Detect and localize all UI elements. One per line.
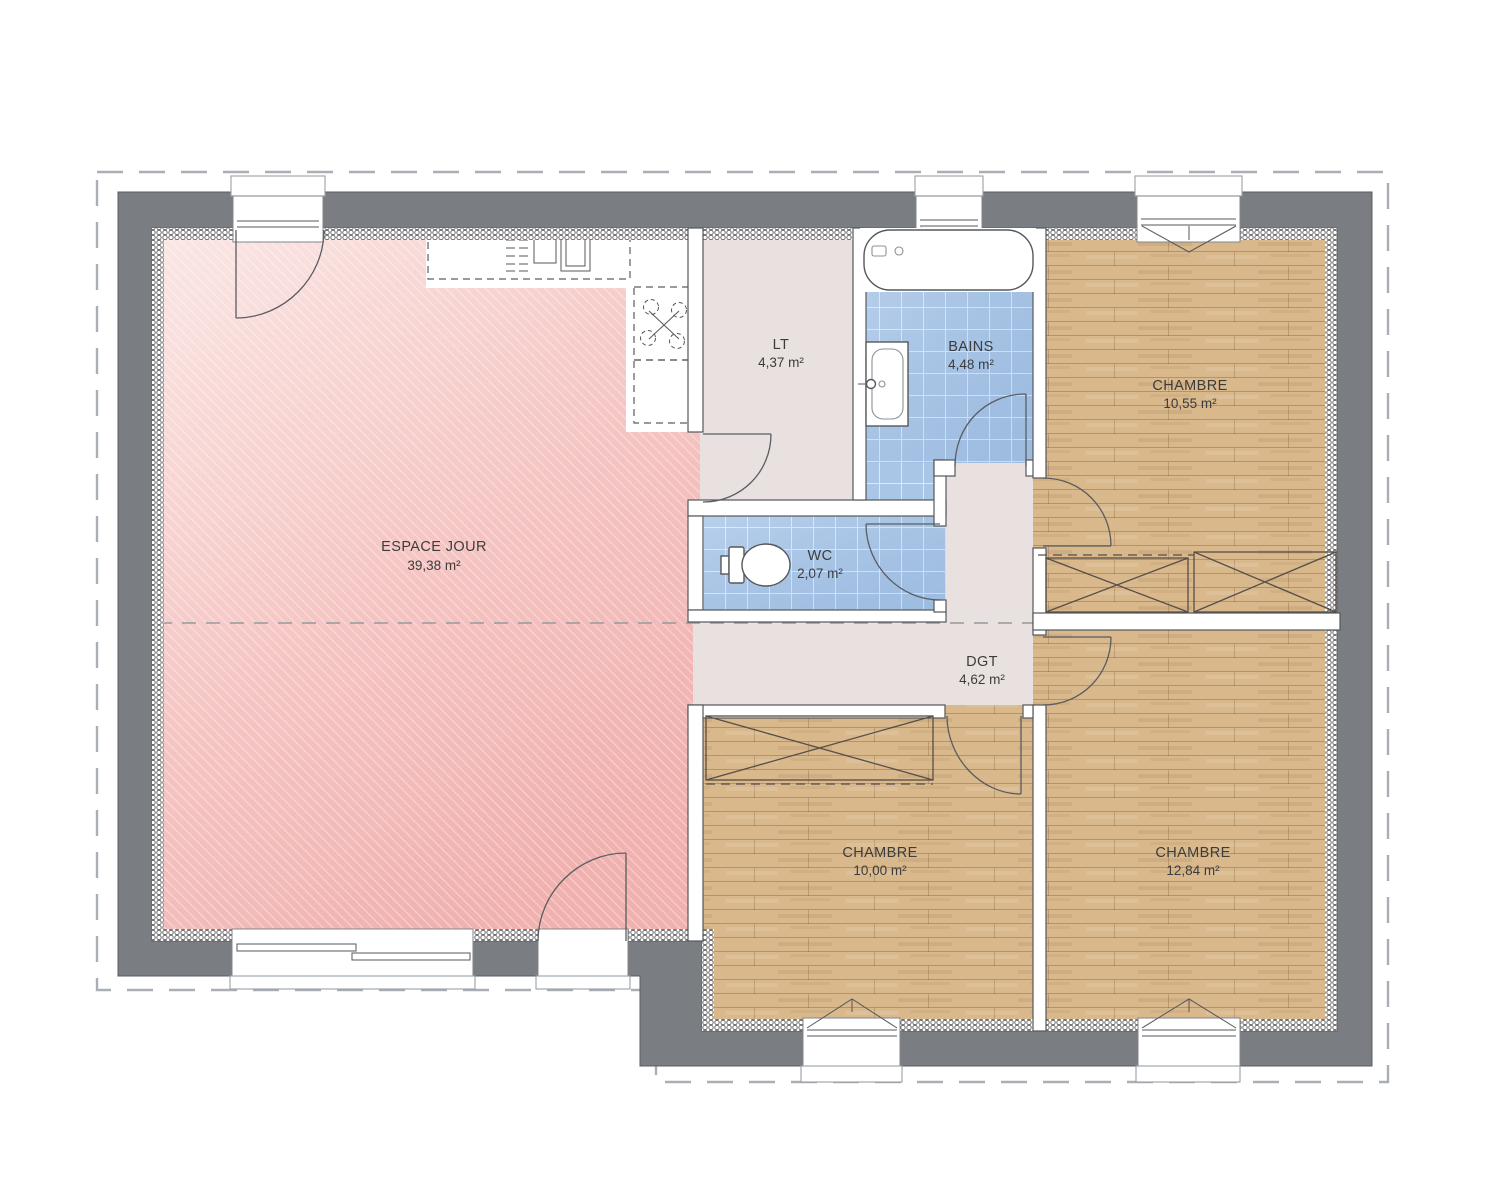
area-wc: 2,07 m² [797,566,843,581]
bay-window-exterior-box [230,976,475,989]
wall-living-chambre2 [688,705,703,941]
area-chambre-3: 12,84 m² [1166,863,1220,878]
floor-chambre-3 [1033,630,1337,1031]
wall-wc-dgt-right-lower [934,600,946,612]
floor-dgt-strip [946,463,1033,622]
wall-wc-dgt [688,610,946,622]
chambre1-window-exterior-box [1135,176,1242,196]
chambre2-window-exterior-box [801,1066,902,1082]
bathtub-icon [864,230,1033,290]
bains-sink-icon [858,342,908,426]
area-chambre-2: 10,00 m² [853,863,907,878]
label-wc: WC [808,548,833,564]
label-dgt: DGT [966,654,998,670]
area-dgt: 4,62 m² [959,672,1005,687]
wall-bains-dgt-stub-left [934,460,955,476]
wall-living-lt [688,228,703,432]
area-lt: 4,37 m² [758,355,804,370]
label-lt: LT [773,337,790,353]
label-chambre-1: CHAMBRE [1152,378,1227,394]
area-bains: 4,48 m² [948,357,994,372]
wall-chambre2-door-stub [1023,705,1033,718]
wall-living-wc [688,516,703,610]
toilet-icon [721,544,790,586]
wall-chambre1-chambre3 [1033,613,1340,630]
chambre2-window-opening [803,1018,900,1066]
label-bains: BAINS [948,339,994,355]
chambre3-window-exterior-box [1136,1066,1240,1082]
label-espace-jour: ESPACE JOUR [381,539,487,555]
floor-plan-page: ESPACE JOUR 39,38 m² LT 4,37 m² BAINS 4,… [0,0,1500,1200]
floor-bains-lower [866,463,940,502]
floor-espace-jour-hatch [152,228,700,941]
label-chambre-2: CHAMBRE [842,845,917,861]
bains-window-exterior-box [915,176,983,196]
living-door-opening [538,929,628,976]
entry-door-opening [233,196,323,242]
wall-chambre2-chambre3 [1033,705,1046,1031]
kitchen-column-zone [626,228,688,432]
entry-door-exterior-box [231,176,325,196]
wall-lt-wc [688,500,946,516]
chambre3-window-opening [1138,1018,1240,1066]
living-door-exterior-box [536,976,630,989]
label-chambre-3: CHAMBRE [1155,845,1230,861]
area-espace-jour: 39,38 m² [407,558,461,573]
area-chambre-1: 10,55 m² [1163,396,1217,411]
floor-chambre-1 [1033,228,1337,613]
floor-plan-drawing: ESPACE JOUR 39,38 m² LT 4,37 m² BAINS 4,… [0,0,1500,1200]
